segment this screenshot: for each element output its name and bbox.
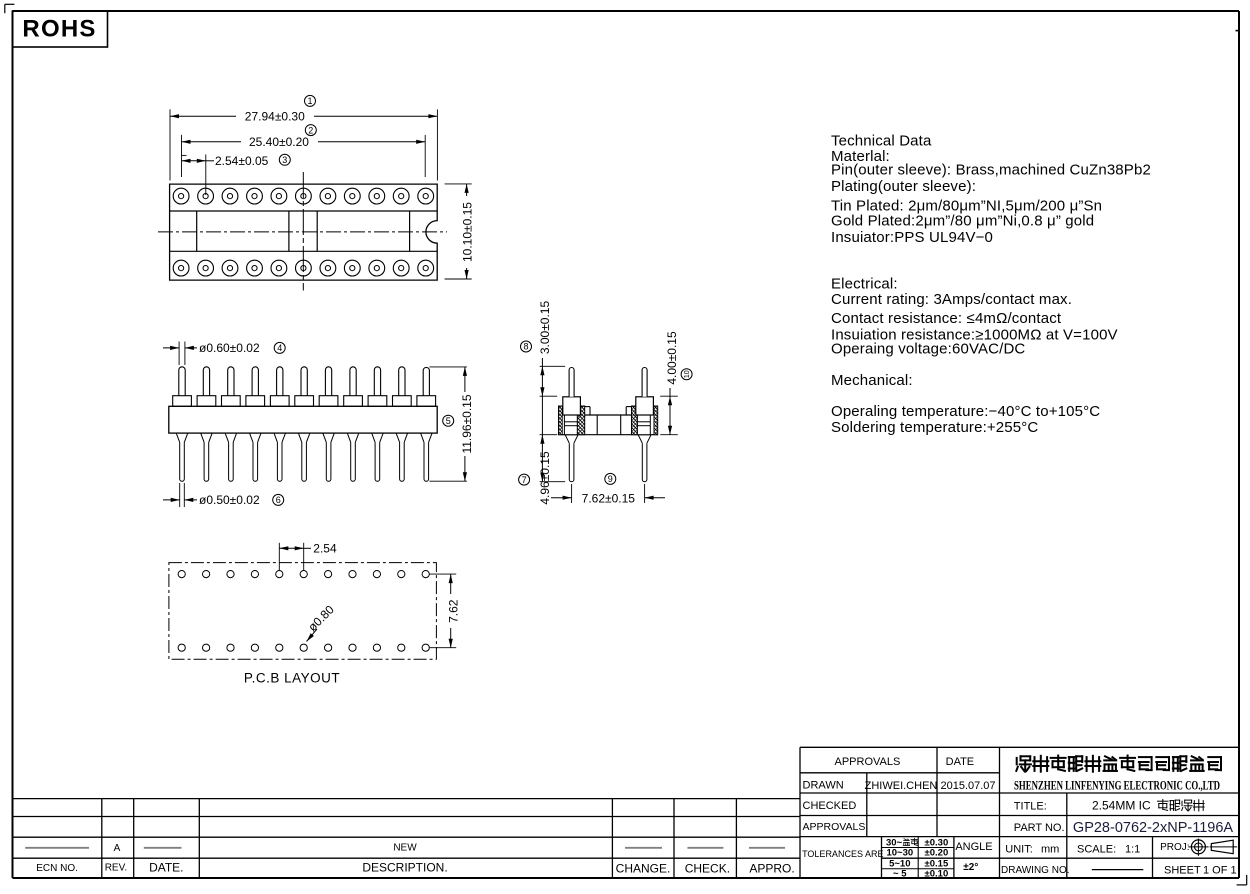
svg-text:DATE: DATE: [946, 756, 975, 768]
svg-text:Plating(outer sleeve):: Plating(outer sleeve):: [831, 178, 976, 195]
svg-text:5: 5: [446, 416, 451, 426]
svg-text:4: 4: [277, 343, 282, 353]
svg-text:REV.: REV.: [105, 862, 127, 873]
svg-text:TITLE:: TITLE:: [1014, 800, 1047, 812]
svg-text:9: 9: [608, 474, 613, 484]
svg-text:10: 10: [684, 370, 691, 378]
svg-text:ANGLE: ANGLE: [955, 841, 992, 853]
svg-text:2015.07.07: 2015.07.07: [940, 780, 995, 792]
svg-text:ZHIWEI.CHEN: ZHIWEI.CHEN: [865, 780, 938, 792]
svg-text:11.96±0.15: 11.96±0.15: [460, 394, 474, 453]
svg-text:PROJ:: PROJ:: [1160, 842, 1189, 853]
svg-text:1 OF 1: 1 OF 1: [1203, 864, 1237, 876]
svg-text:GP28-0762-2xNP-1196A: GP28-0762-2xNP-1196A: [1073, 820, 1233, 836]
svg-text:10.10±0.15: 10.10±0.15: [461, 202, 475, 262]
svg-text:CHECKED: CHECKED: [803, 800, 857, 812]
svg-text:7.62: 7.62: [447, 599, 461, 623]
svg-text:8: 8: [523, 342, 528, 352]
svg-text:1:1: 1:1: [1125, 843, 1140, 855]
svg-text:SHENZHEN LINFENYING ELECTRONIC: SHENZHEN LINFENYING ELECTRONIC CO.,LTD: [1014, 778, 1220, 793]
svg-text:Electrical:: Electrical:: [831, 275, 898, 292]
svg-text:UNIT:: UNIT:: [1005, 843, 1033, 855]
svg-text:CHANGE.: CHANGE.: [616, 862, 671, 876]
svg-text:APPRO.: APPRO.: [749, 862, 794, 876]
svg-text:Operaling temperature:−40°C t: Operaling temperature:−40°C to+105°C: [831, 403, 1100, 420]
svg-text:SCALE:: SCALE:: [1077, 843, 1116, 855]
svg-text:±2°: ±2°: [963, 862, 978, 873]
svg-text:DRAWING NO.: DRAWING NO.: [1001, 865, 1070, 876]
svg-text:TOLERANCES ARE: TOLERANCES ARE: [802, 849, 883, 859]
svg-text:Contact resistance: ≤4mΩ/conta: Contact resistance: ≤4mΩ/contact: [831, 310, 1062, 327]
svg-text:DATE.: DATE.: [149, 861, 183, 875]
svg-text:Gold Plated:2μm”/80 μm”Ni,0.8: Gold Plated:2μm”/80 μm”Ni,0.8 μ” gold: [831, 212, 1094, 229]
svg-text:Soldering temperature:+255°C: Soldering temperature:+255°C: [831, 419, 1038, 436]
svg-text:±0.20: ±0.20: [925, 848, 949, 859]
svg-text:2: 2: [308, 125, 313, 135]
svg-text:±0.10: ±0.10: [925, 868, 949, 879]
svg-text:4.96±0.15: 4.96±0.15: [538, 451, 552, 505]
svg-text:~ 5: ~ 5: [893, 868, 907, 879]
svg-text:2.54: 2.54: [313, 542, 337, 556]
svg-text:Insuiator:PPS UL94V−0: Insuiator:PPS UL94V−0: [831, 229, 993, 246]
svg-text:4.00±0.15: 4.00±0.15: [665, 331, 679, 385]
svg-text:Mechanical:: Mechanical:: [831, 372, 913, 389]
svg-text:PART NO.: PART NO.: [1014, 822, 1065, 834]
svg-text:P.C.B LAYOUT: P.C.B LAYOUT: [244, 671, 340, 686]
svg-text:SHEET: SHEET: [1164, 864, 1201, 876]
svg-text:7.62±0.15: 7.62±0.15: [582, 491, 636, 505]
svg-text:ø0.50±0.02: ø0.50±0.02: [199, 493, 260, 507]
svg-text:Pin(outer sleeve): Brass,machi: Pin(outer sleeve): Brass,machined CuZn38…: [831, 162, 1151, 179]
svg-text:NEW: NEW: [393, 843, 417, 854]
svg-text:CHECK.: CHECK.: [685, 862, 730, 876]
svg-text:3: 3: [282, 155, 287, 165]
svg-text:3.00±0.15: 3.00±0.15: [538, 301, 552, 355]
svg-text:ø0.60±0.02: ø0.60±0.02: [199, 341, 260, 355]
svg-text:2.54±0.05: 2.54±0.05: [215, 154, 269, 168]
svg-text:Operaing voltage:60VAC/DC: Operaing voltage:60VAC/DC: [831, 341, 1025, 358]
svg-text:APPROVALS: APPROVALS: [803, 821, 866, 833]
svg-text:ECN NO.: ECN NO.: [36, 863, 78, 874]
svg-text:27.94±0.30: 27.94±0.30: [245, 109, 305, 123]
svg-text:DESCRIPTION.: DESCRIPTION.: [362, 861, 447, 875]
svg-text:2.54MM IC: 2.54MM IC: [1092, 798, 1151, 812]
svg-text:DRAWN: DRAWN: [803, 779, 844, 791]
svg-text:mm: mm: [1041, 843, 1059, 855]
svg-text:1: 1: [307, 96, 312, 106]
svg-text:10~30: 10~30: [886, 848, 913, 859]
svg-text:Current rating: 3Amps/contact: Current rating: 3Amps/contact max.: [831, 291, 1072, 308]
svg-text:25.40±0.20: 25.40±0.20: [249, 135, 309, 149]
svg-text:ROHS: ROHS: [22, 16, 96, 43]
svg-text:A: A: [114, 843, 121, 854]
svg-text:APPROVALS: APPROVALS: [834, 756, 900, 768]
svg-text:6: 6: [276, 495, 281, 505]
svg-text:7: 7: [522, 475, 527, 485]
